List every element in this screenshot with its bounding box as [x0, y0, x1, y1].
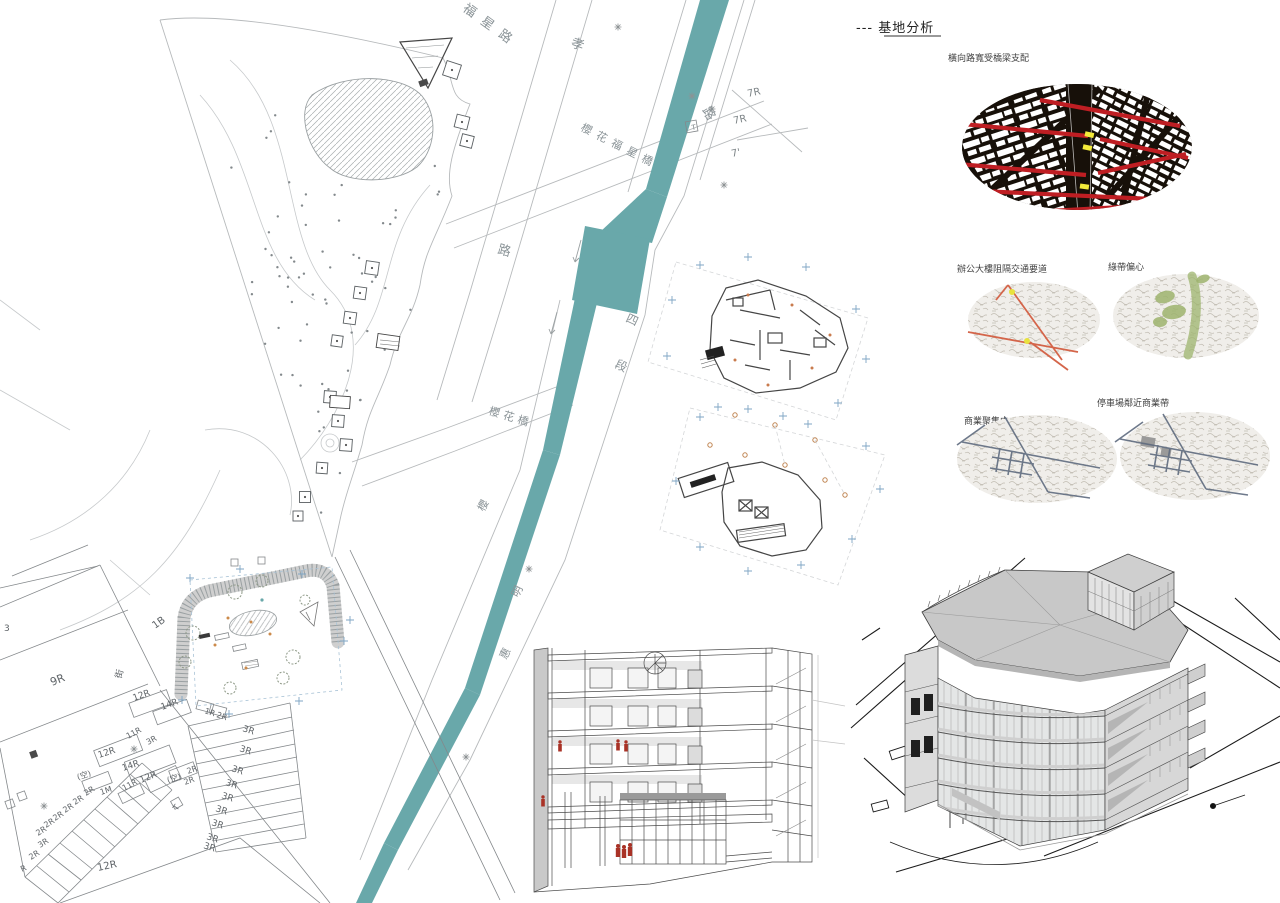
tree-dot: [317, 411, 319, 413]
tree-dot: [434, 329, 436, 331]
tree-dot: [233, 387, 235, 389]
tree-dot: [312, 293, 314, 295]
tree-dot: [333, 194, 335, 196]
lot-label: 3R: [238, 744, 252, 757]
floor-plan-lower: [660, 408, 885, 585]
lot-label: 3R: [214, 804, 228, 817]
street-label: 福星路: [460, 0, 523, 52]
tree-dot: [377, 511, 379, 513]
tree-dot: [420, 347, 422, 349]
building-dot: [349, 317, 351, 319]
tree-dot: [371, 281, 373, 283]
building-dot: [297, 515, 299, 517]
tree-dot: [293, 260, 295, 262]
tree-dot: [274, 114, 276, 116]
lot-label: 3: [4, 624, 10, 634]
tree-dot: [265, 483, 267, 485]
street-label: 路: [699, 104, 719, 123]
building-dot: [359, 292, 361, 294]
lot-label: (空): [166, 771, 183, 785]
tree-dot: [338, 219, 340, 221]
lot-label: 1R: [203, 706, 216, 718]
tree-dot: [430, 356, 432, 358]
tree-dot: [224, 334, 226, 336]
tree-dot: [400, 338, 402, 340]
street-label: 櫻: [474, 497, 491, 513]
river-seg-3: [543, 298, 597, 455]
analysis-map-green: [1113, 273, 1259, 358]
ground-line: [534, 852, 772, 892]
tree-dot: [270, 130, 272, 132]
park-detail: [179, 567, 342, 706]
tree-dot: [321, 383, 323, 385]
canopy-band: [620, 793, 726, 800]
board-canvas: 福星路孝路櫻花福星橋路四段櫻花橋櫻明惠 7R7R7'T: [0, 0, 1280, 903]
lot-label: 2R: [82, 784, 96, 798]
tree-dot: [287, 276, 289, 278]
crosshair-marks: [178, 253, 884, 718]
street-label: 路: [496, 241, 513, 260]
lot-label: 1M: [99, 785, 113, 797]
site-annotation: 7R: [746, 86, 761, 100]
site-annotation: 7R: [732, 113, 747, 127]
tree-dot: [406, 473, 408, 475]
filled-lot-mark: [29, 750, 38, 759]
tree-dot: [370, 537, 372, 539]
tree-dot: [420, 524, 422, 526]
street-label: 孝: [569, 36, 586, 55]
tree-dot: [329, 266, 331, 268]
tree-dot: [323, 426, 325, 428]
building-dot: [337, 420, 339, 422]
tree-dot: [341, 184, 343, 186]
tree-dot: [389, 223, 391, 225]
lower-plan-columns: [708, 413, 847, 497]
lot-label: 3R: [220, 791, 234, 804]
building-dot: [336, 340, 338, 342]
lower-plan-outline: [722, 462, 822, 556]
lot-label: 2R: [27, 848, 41, 862]
building-dot: [466, 140, 468, 142]
tree-dot: [264, 343, 266, 345]
map-a-node-2: [1024, 338, 1030, 344]
tree-dot: [434, 246, 436, 248]
map-b-base: [1113, 274, 1259, 358]
section-right-tower: [772, 648, 812, 862]
section-perspective: [534, 648, 845, 892]
tree-dot: [305, 193, 307, 195]
tree-dot: [318, 430, 320, 432]
building-dot: [304, 496, 306, 498]
tree-dot: [438, 191, 440, 193]
map-d-base: [1120, 412, 1270, 500]
tree-dot: [325, 302, 327, 304]
tree-dot: [264, 248, 266, 250]
upper-plan-site-line: [648, 262, 868, 420]
building-dot: [461, 121, 463, 123]
lower-plan-elevators: [739, 500, 768, 518]
cadastral-map: 9R1B街312R14R11R3R12R14R12R11R1M(空)(空)2R2…: [0, 545, 515, 903]
tree-dot: [339, 472, 341, 474]
tree-dot: [252, 458, 254, 460]
tree-dot: [394, 216, 396, 218]
lot-label: 3R: [230, 764, 244, 777]
lot-label: T: [171, 803, 182, 813]
map-d-label: 停車場鄰近商業帶: [1097, 397, 1169, 409]
tree-dot: [437, 193, 439, 195]
lot-label: 12R: [132, 688, 152, 703]
analysis-title: --- 基地分析: [856, 21, 934, 36]
tree-dot: [421, 447, 423, 449]
upper-plan-room-b: [814, 338, 826, 347]
lot-label: 2R: [183, 775, 196, 787]
building-dot: [345, 444, 347, 446]
tree-dot: [434, 165, 436, 167]
figure-ground-map: [958, 80, 1194, 215]
lot-label: 3R: [210, 818, 224, 831]
tree-dot: [291, 301, 293, 303]
tree-dot: [268, 231, 270, 233]
bench-a: [215, 633, 230, 641]
section-bg-lines: [812, 655, 845, 858]
tree-dot: [436, 344, 438, 346]
tree-dot: [229, 536, 231, 538]
lower-plan-grid-ties: [775, 425, 845, 495]
tree-dot: [375, 276, 377, 278]
tree-dot: [243, 536, 245, 538]
tree-dot: [265, 137, 267, 139]
tree-dot: [247, 422, 249, 424]
street-label: 四: [624, 311, 641, 329]
tree-dot: [347, 370, 349, 372]
tree-dot: [262, 457, 264, 459]
tree-dot: [276, 266, 278, 268]
lot-label: (空): [76, 768, 93, 782]
tree-dot: [270, 254, 272, 256]
pavilion-b: [330, 395, 351, 408]
lot-label: 3R: [224, 778, 238, 791]
lot-label: 11R: [125, 725, 144, 741]
tree-dot: [251, 281, 253, 283]
tree-dot: [278, 275, 280, 277]
building-dot: [371, 267, 373, 269]
tree-dot: [436, 257, 438, 259]
lot-labels: 9R1B街312R14R11R3R12R14R12R11R1M(空)(空)2R2…: [4, 615, 256, 874]
tree-dot: [431, 339, 433, 341]
tree-dot: [237, 319, 239, 321]
site-annotations: 7R7R7'T: [690, 86, 762, 160]
tree-dot: [228, 314, 230, 316]
tree-dot: [277, 327, 279, 329]
lot-label: 3R: [241, 724, 255, 737]
analysis-panel: --- 基地分析 橫向路寬受橋梁支配 辦公大樓阻隔交通要道: [856, 21, 1270, 503]
survey-crosshairs: [178, 253, 884, 718]
pavilion-a: [376, 334, 400, 351]
tree-dot: [351, 331, 353, 333]
tree-dot: [402, 337, 404, 339]
park-round-feature-inner: [326, 439, 334, 447]
map-a-node-1: [1009, 289, 1015, 295]
lower-plan-site-line: [660, 408, 885, 585]
tree-dot: [277, 215, 279, 217]
tree-dot: [280, 374, 282, 376]
tree-dot: [384, 287, 386, 289]
east-edge-balconies: [1188, 664, 1205, 768]
pond: [305, 79, 433, 180]
lot-label: 12R: [138, 770, 158, 786]
tree-dot: [422, 310, 424, 312]
street-label: 段: [613, 356, 630, 375]
lower-plan-ramp-core: [690, 474, 717, 488]
tree-dot: [288, 181, 290, 183]
tower-stair-flights: [776, 668, 806, 836]
park-west-edge: [160, 20, 332, 557]
map-a-label: 辦公大樓阻隔交通要道: [957, 263, 1047, 275]
tree-dot: [417, 303, 419, 305]
tree-dot: [272, 460, 274, 462]
lot-label: 2R: [215, 710, 228, 722]
lot-label: 14R: [121, 759, 141, 774]
tree-dot: [299, 340, 301, 342]
lot-label: R: [19, 863, 28, 874]
tree-dot: [411, 458, 413, 460]
lot-label: 9R: [48, 671, 67, 689]
tree-dot: [346, 389, 348, 391]
analysis-map-traffic: [968, 282, 1100, 370]
tree-dots: [224, 114, 440, 540]
figure-ground-label: 橫向路寬受橋梁支配: [948, 52, 1029, 64]
river-seg-6: [356, 843, 398, 903]
lot-label: 2R: [71, 793, 85, 807]
tree-dot: [395, 209, 397, 211]
building-dot: [451, 69, 453, 71]
tree-dot: [367, 502, 369, 504]
upper-plan-outline: [710, 280, 848, 393]
tree-dot: [358, 257, 360, 259]
upper-plan-room-c: [768, 333, 782, 343]
tree-dot: [382, 222, 384, 224]
tree-dot: [435, 259, 437, 261]
tree-dot: [246, 456, 248, 458]
tree-dot: [299, 384, 301, 386]
tree-dot: [320, 511, 322, 513]
tree-dot: [361, 272, 363, 274]
tree-dot: [359, 399, 361, 401]
playground-slide: [300, 602, 318, 626]
upper-plan-room-a: [733, 298, 743, 306]
tree-dot: [298, 276, 300, 278]
tree-dot: [327, 388, 329, 390]
tree-dot: [247, 460, 249, 462]
street-label: 櫻花橋: [487, 403, 534, 430]
lot-label: 3R: [202, 841, 216, 854]
cadastral-lines: [0, 545, 515, 903]
tree-dot: [352, 254, 354, 256]
lot-label: 街: [112, 668, 126, 680]
tree-dot: [305, 224, 307, 226]
tree-dot: [291, 374, 293, 376]
tree-dot: [366, 330, 368, 332]
tree-dot: [235, 424, 237, 426]
tree-dot: [395, 481, 397, 483]
tree-dot: [301, 204, 303, 206]
teal-dot: [260, 598, 263, 601]
tree-dot: [230, 166, 232, 168]
tree-dot: [324, 298, 326, 300]
axo-building: [905, 554, 1205, 850]
tree-dot: [321, 250, 323, 252]
tree-dot: [290, 257, 292, 259]
building-dot: [321, 467, 323, 469]
section-figures: [541, 739, 632, 858]
park-round-feature: [321, 434, 339, 452]
tree-dot: [409, 309, 411, 311]
tree-dot: [257, 454, 259, 456]
section-ceiling-shade: [552, 661, 702, 784]
river-seg-5: [384, 688, 480, 850]
map-b-label: 綠帶偏心: [1108, 261, 1144, 273]
site-annotation: 7': [730, 147, 741, 160]
tree-dot: [306, 323, 308, 325]
tree-dot: [425, 321, 427, 323]
bench-b: [233, 644, 247, 652]
river-seg-1: [646, 0, 729, 197]
analysis-map-parking: [1115, 412, 1270, 500]
tree-dot: [251, 293, 253, 295]
analysis-map-commerce: [957, 415, 1117, 503]
axonometric-view: [851, 554, 1280, 872]
lot-label: 3R: [36, 836, 50, 850]
lot-label: 1B: [150, 615, 167, 632]
tree-dot: [287, 286, 289, 288]
street-label: 惠: [496, 645, 513, 661]
tree-dot: [303, 273, 305, 275]
floor-plan-upper: [648, 262, 868, 420]
section-cut-wall: [534, 648, 548, 892]
presentation-board: 福星路孝路櫻花福星橋路四段櫻花橋櫻明惠 7R7R7'T: [0, 0, 1280, 903]
section-ground-floor: [534, 792, 772, 892]
lot-label: 3R: [145, 734, 159, 747]
lower-plan-louver: [736, 524, 785, 543]
tree-dot: [429, 421, 431, 423]
